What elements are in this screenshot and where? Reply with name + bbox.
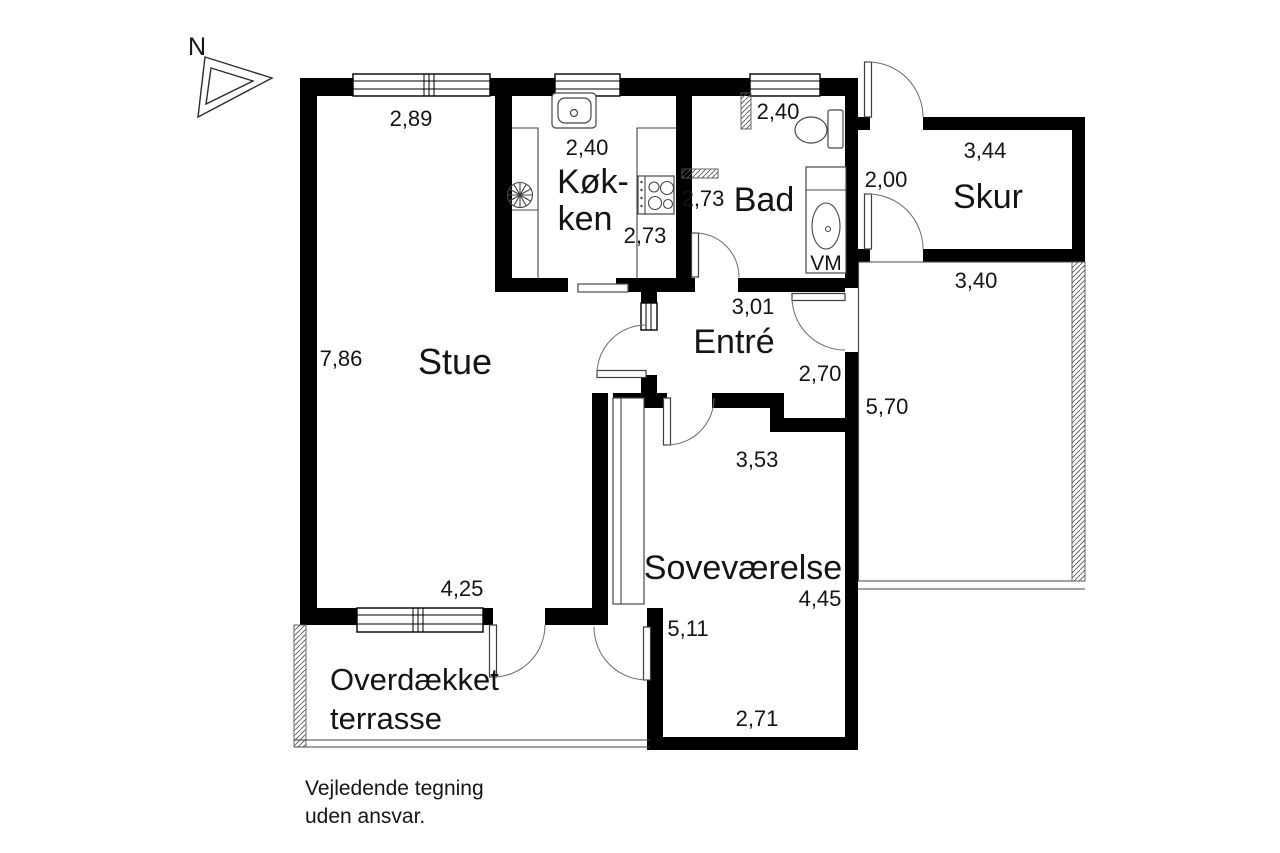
patio-hatch-edge bbox=[1072, 262, 1085, 581]
window-bath-north bbox=[750, 74, 820, 96]
wall-bedroom-west bbox=[592, 393, 608, 610]
window-stue-south bbox=[357, 608, 483, 632]
dim-shed-depth: 2,00 bbox=[865, 167, 908, 192]
wall-north-c bbox=[620, 78, 750, 96]
wall-extension-south bbox=[647, 737, 858, 750]
room-label-bath: Bad bbox=[734, 181, 795, 219]
extractor-fan-icon bbox=[508, 183, 533, 208]
dim-bath-width: 2,40 bbox=[757, 99, 800, 124]
room-label-bedroom: Soveværelse bbox=[644, 549, 842, 587]
wall-stub-entre-bottom bbox=[641, 375, 657, 396]
room-label-terrace-line1: Overdækket bbox=[330, 662, 499, 697]
room-label-stue: Stue bbox=[418, 341, 492, 382]
door-front-entre bbox=[792, 294, 845, 351]
dim-patio-west: 5,70 bbox=[866, 394, 909, 419]
window-sidelight-entre bbox=[641, 303, 657, 330]
kitchen-threshold bbox=[578, 284, 628, 292]
dim-entre-depth: 2,70 bbox=[799, 361, 842, 386]
window-stue-north bbox=[353, 74, 490, 96]
north-label: N bbox=[188, 33, 206, 61]
wall-north-b bbox=[490, 78, 555, 96]
wall-shed-east bbox=[1072, 117, 1085, 262]
floor-plan-drawing: N bbox=[0, 0, 1280, 853]
wall-east-lower bbox=[845, 352, 858, 750]
wall-west bbox=[300, 78, 317, 625]
disclaimer-line1: Vejledende tegning bbox=[305, 777, 484, 800]
door-terrace-bedroom bbox=[594, 627, 651, 680]
room-label-entre: Entré bbox=[693, 323, 774, 361]
wall-stue-south-a bbox=[300, 608, 357, 625]
wall-shed-north-stub bbox=[858, 117, 870, 130]
wall-bedroom-north-b bbox=[712, 393, 777, 408]
stove-icon bbox=[638, 176, 674, 214]
wall-shed-south bbox=[923, 249, 1085, 262]
north-arrow: N bbox=[188, 33, 272, 117]
wall-stue-south-b bbox=[483, 608, 493, 625]
wall-entre-step-horizontal bbox=[777, 418, 845, 432]
dim-patio-north: 3,40 bbox=[955, 268, 998, 293]
wall-bath-south bbox=[738, 278, 845, 292]
dim-stue-west: 7,86 bbox=[320, 346, 363, 371]
door-shed-north bbox=[865, 62, 924, 117]
kitchen-sink bbox=[552, 93, 596, 128]
terrace-hatch-edge bbox=[294, 625, 306, 747]
dim-kitchen-depth: 2,73 bbox=[624, 223, 667, 248]
dim-bedroom-west: 5,11 bbox=[667, 616, 708, 641]
bath-vent-horizontal bbox=[682, 169, 718, 178]
door-shed-south bbox=[865, 194, 924, 249]
room-label-terrace-line2: terrasse bbox=[330, 701, 442, 736]
wall-stub-entre-top bbox=[641, 278, 657, 303]
wall-stue-south-c bbox=[545, 608, 608, 625]
toilet-icon bbox=[795, 110, 843, 148]
dim-bedroom-north: 3,53 bbox=[736, 447, 779, 472]
patio-outline bbox=[858, 262, 1085, 589]
door-bath bbox=[692, 233, 740, 277]
dim-bedroom-east: 4,45 bbox=[799, 586, 842, 611]
floor-plan-page: N bbox=[0, 0, 1280, 853]
wall-shed-south-stub bbox=[858, 249, 870, 262]
dim-stue-north: 2,89 bbox=[390, 106, 433, 131]
dim-kitchen-width: 2,40 bbox=[566, 135, 609, 160]
bath-vent-vertical bbox=[741, 93, 751, 129]
dim-entre-width: 3,01 bbox=[732, 294, 775, 319]
wardrobe-icon bbox=[613, 398, 644, 604]
disclaimer-line2: uden ansvar. bbox=[305, 805, 425, 828]
wall-kitchen-west bbox=[495, 96, 512, 292]
dim-shed-width: 3,44 bbox=[964, 138, 1007, 163]
door-stue-entre bbox=[597, 325, 646, 378]
wall-east-upper bbox=[845, 78, 858, 288]
dim-bedroom-south: 2,71 bbox=[736, 706, 779, 731]
room-label-kitchen-line2: ken bbox=[558, 200, 613, 238]
bedroom-fixtures bbox=[613, 398, 644, 604]
wall-north-a bbox=[300, 78, 353, 96]
washing-machine-label: VM bbox=[810, 252, 842, 275]
dim-stue-south: 4,25 bbox=[441, 576, 484, 601]
door-entre-bedroom bbox=[664, 398, 715, 445]
wall-kitchen-south-a bbox=[495, 278, 568, 292]
wall-shed-north bbox=[923, 117, 1085, 130]
room-label-kitchen-line1: Køk- bbox=[557, 163, 629, 201]
room-label-shed: Skur bbox=[953, 178, 1023, 216]
dim-bath-depth: 2,73 bbox=[682, 186, 725, 211]
